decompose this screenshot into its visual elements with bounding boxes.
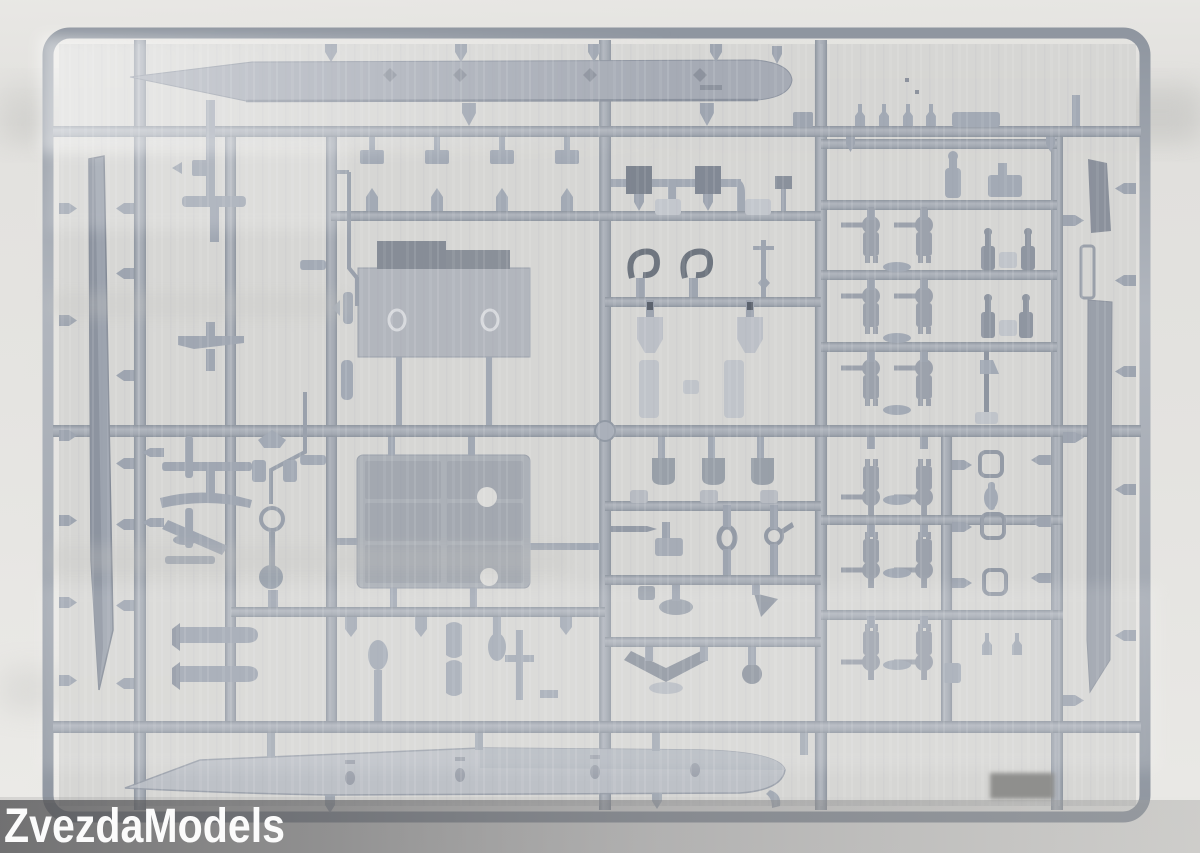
svg-text:ZvezdaModels: ZvezdaModels bbox=[4, 800, 285, 853]
